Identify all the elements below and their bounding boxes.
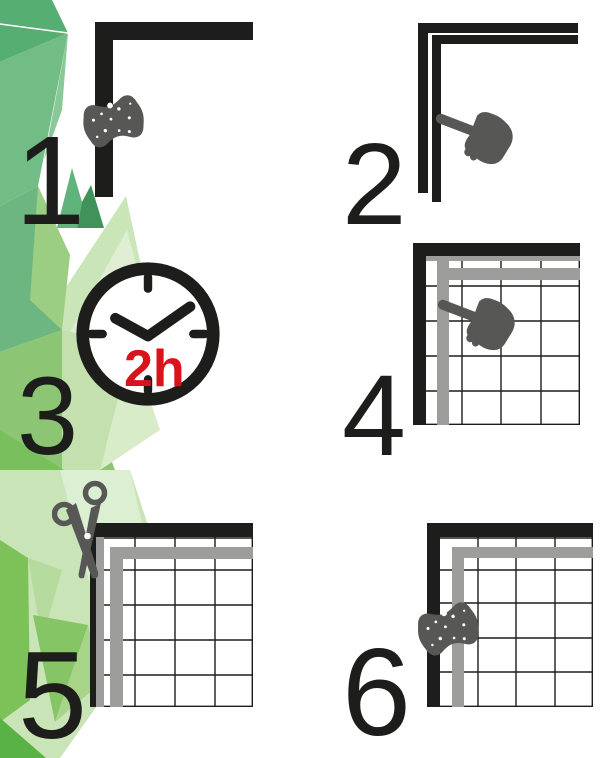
step-number: 5 xyxy=(18,634,87,758)
tile-grid-icon xyxy=(413,243,580,425)
step-number: 1 xyxy=(15,118,85,244)
pointing-hand-icon xyxy=(425,95,535,170)
step-number: 6 xyxy=(342,631,411,755)
step-number: 2 xyxy=(342,126,407,242)
scissors-icon xyxy=(52,478,116,586)
step-number: 4 xyxy=(342,359,406,474)
wall-corner-icon xyxy=(418,23,578,33)
strip-corner-icon xyxy=(432,35,578,44)
clock-duration-label: 2h xyxy=(124,343,185,395)
instruction-sheet: 1 2 2h 3 xyxy=(0,0,616,758)
sponge-icon xyxy=(398,585,498,669)
wall-corner-icon xyxy=(95,22,253,40)
step-number: 3 xyxy=(17,362,78,472)
